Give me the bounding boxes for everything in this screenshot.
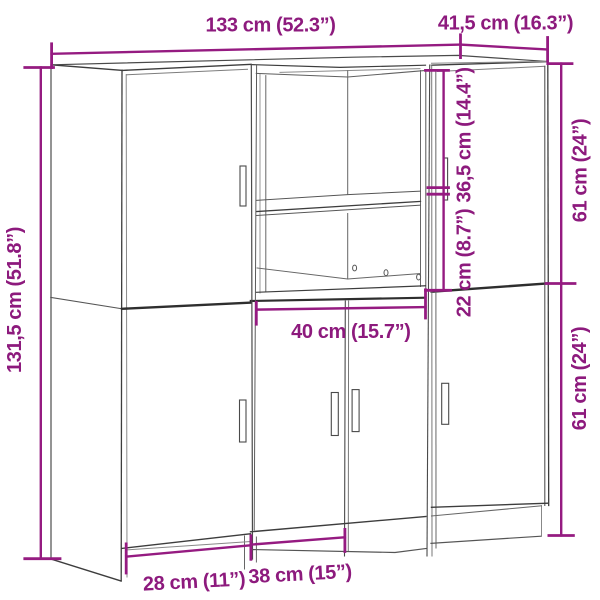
- svg-text:40 cm (15.7”): 40 cm (15.7”): [291, 321, 410, 343]
- svg-text:41,5 cm (16.3”): 41,5 cm (16.3”): [438, 13, 573, 35]
- svg-text:61 cm (24”): 61 cm (24”): [569, 327, 591, 430]
- svg-text:36,5 cm (14.4”): 36,5 cm (14.4”): [454, 67, 476, 202]
- svg-text:131,5 cm (51.8”): 131,5 cm (51.8”): [4, 227, 26, 373]
- svg-text:22 cm (8.7”): 22 cm (8.7”): [454, 209, 476, 318]
- svg-text:133 cm (52.3”): 133 cm (52.3”): [205, 15, 335, 37]
- svg-text:61 cm (24”): 61 cm (24”): [569, 119, 591, 222]
